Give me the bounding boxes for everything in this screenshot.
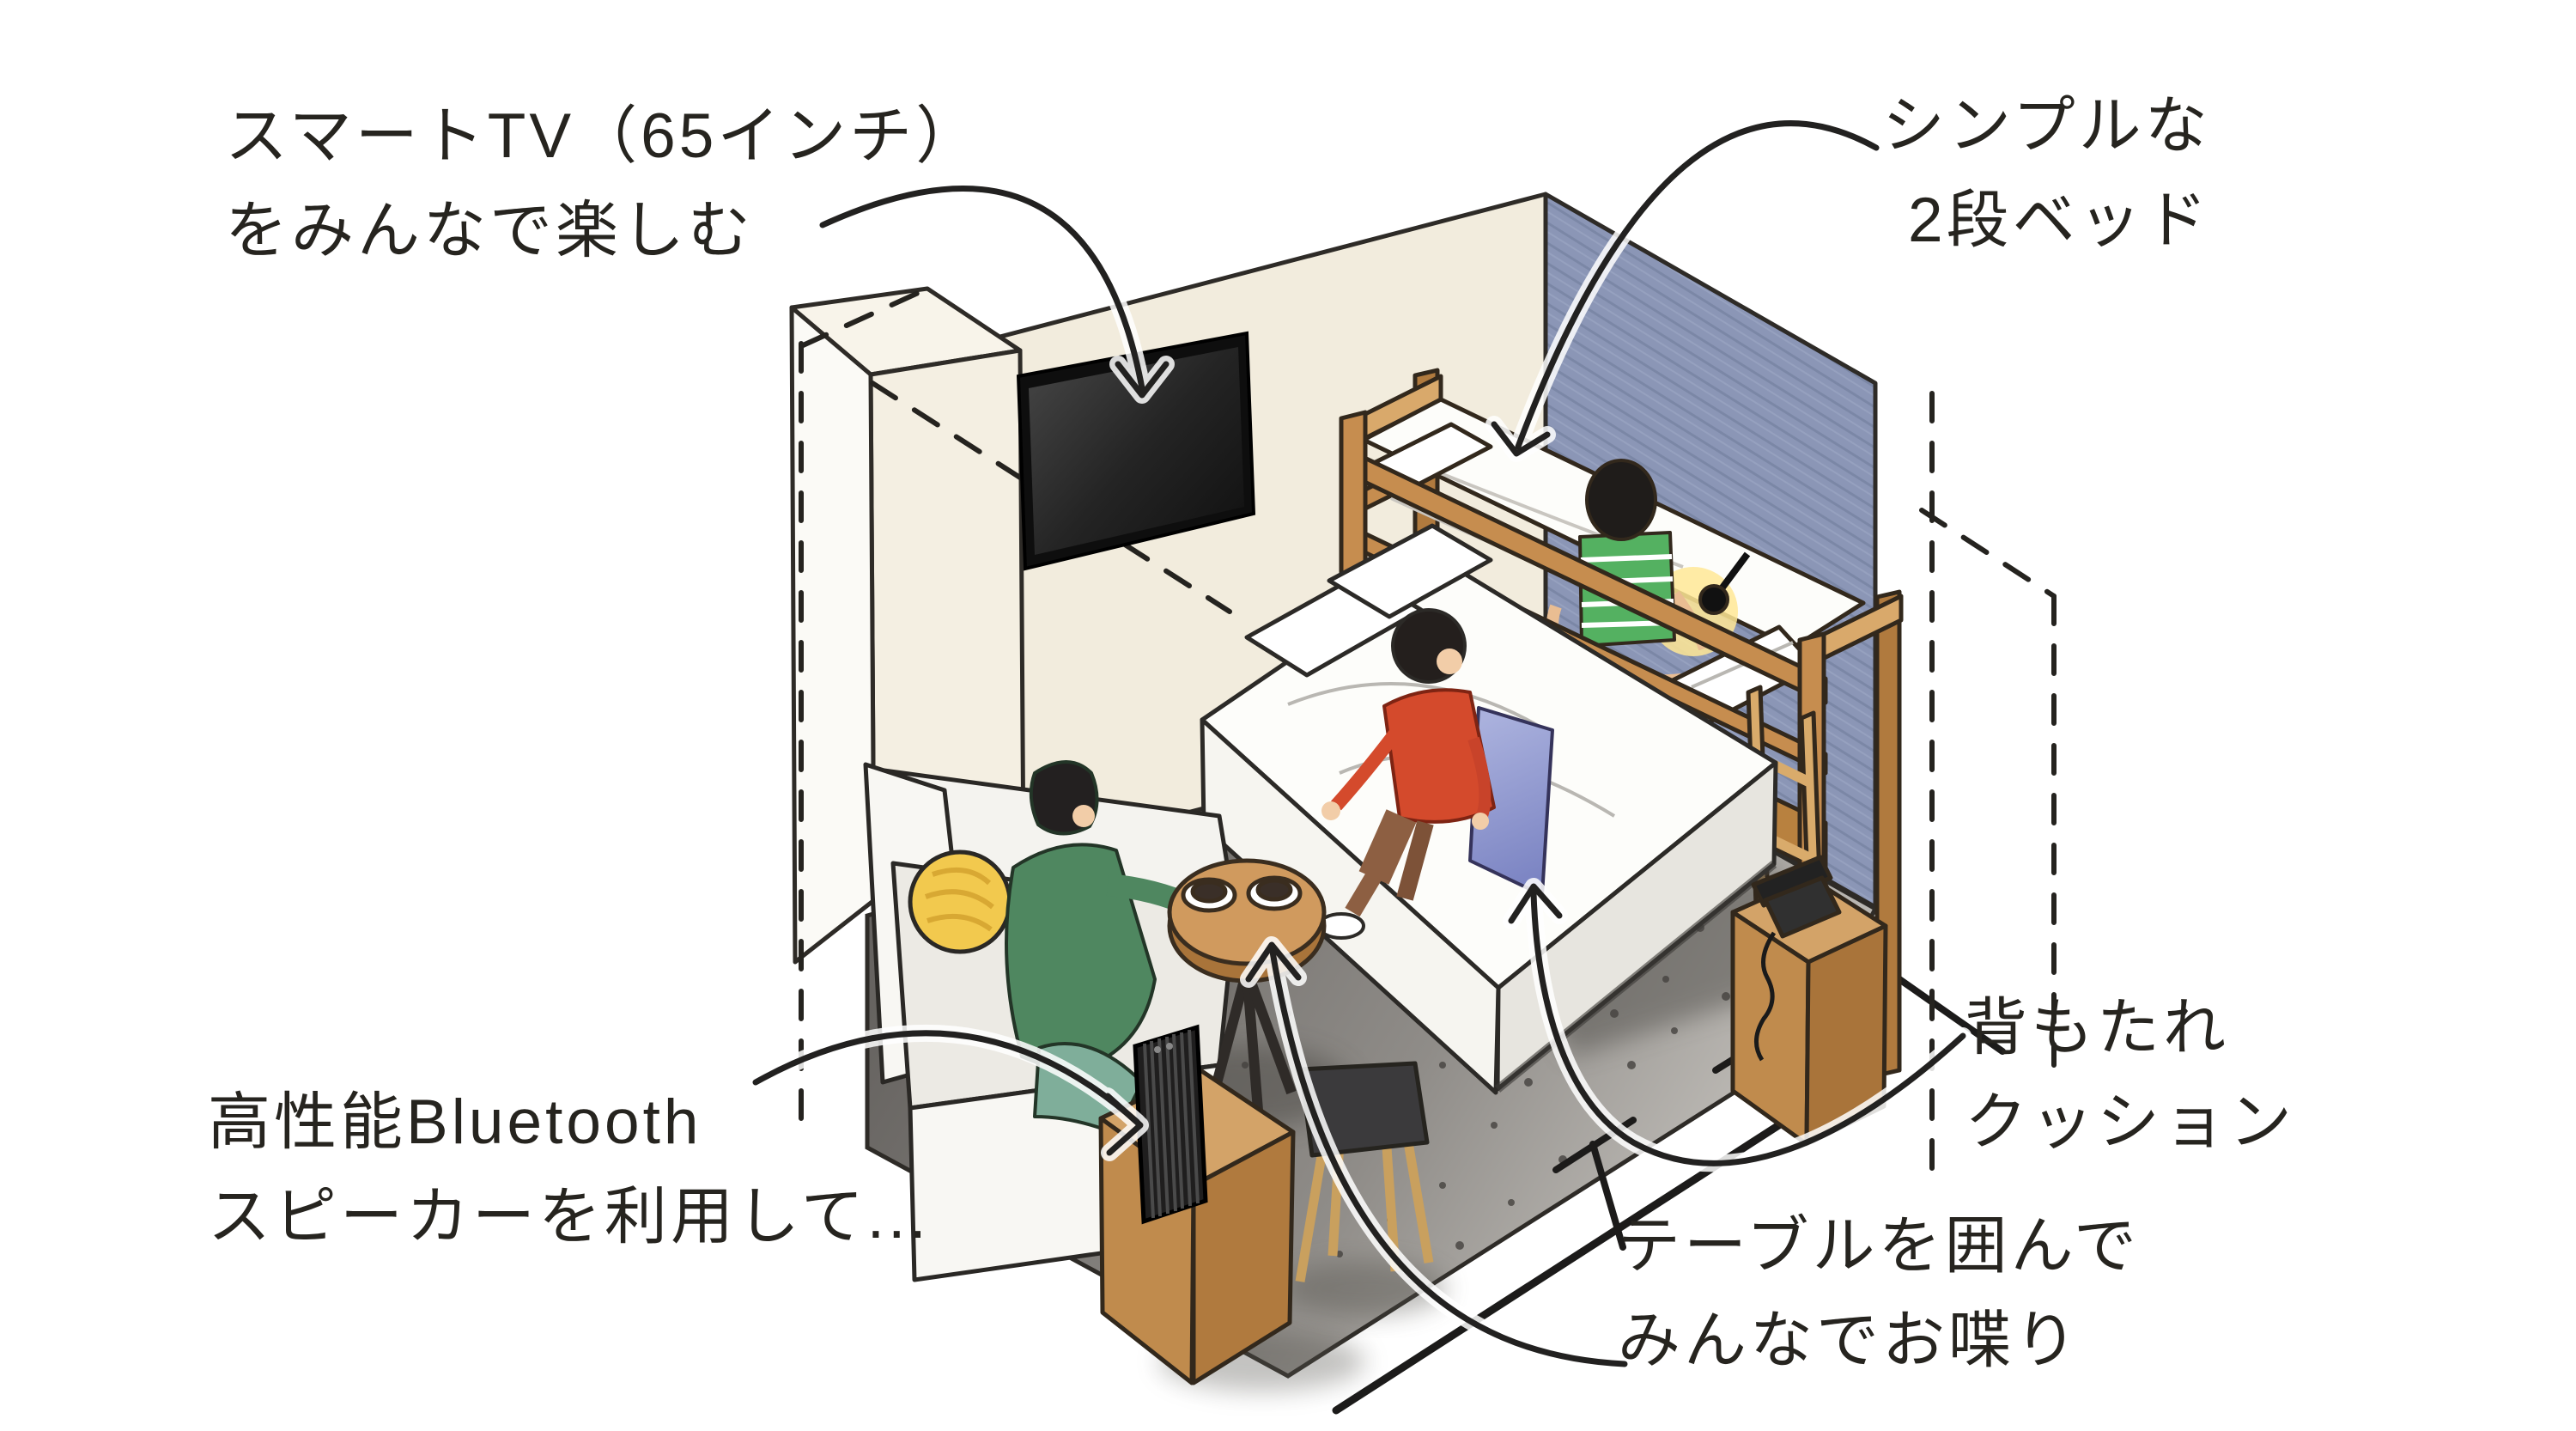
coffee-cup: [1183, 880, 1235, 910]
annotation-line: クッション: [1965, 1075, 2295, 1170]
illustration-canvas: スマートTV（65インチ） をみんなで楽しむ シンプルな 2段ベッド 高性能Bl…: [0, 0, 2576, 1431]
annotation-line: みんなでお喋り: [1618, 1294, 2140, 1388]
annotation-line: シンプルな: [1882, 91, 2211, 161]
yellow-cushion: [910, 852, 1010, 952]
annotation-bunk-bed: シンプルな 2段ベッド: [1882, 79, 2211, 267]
annotation-line: 2段ベッド: [1882, 174, 2211, 268]
annotation-line: スピーカーを利用して...: [208, 1170, 930, 1264]
annotation-smart-tv: スマートTV（65インチ） をみんなで楽しむ: [225, 89, 981, 277]
woman-face: [1437, 649, 1462, 674]
annotation-line: テーブルを囲んで: [1618, 1211, 2140, 1281]
annotation-bluetooth-speaker: 高性能Bluetooth スピーカーを利用して...: [208, 1075, 930, 1264]
annotation-line: 背もたれ: [1965, 993, 2229, 1063]
coffee-cup: [1249, 878, 1300, 909]
annotation-backrest-cushion: 背もたれ クッション: [1965, 981, 2295, 1169]
man-face: [1072, 805, 1095, 827]
annotation-table-chat: テーブルを囲んで みんなでお喋り: [1618, 1199, 2140, 1387]
annotation-line: スマートTV（65インチ）: [225, 101, 981, 171]
annotation-line: 高性能Bluetooth: [208, 1087, 702, 1157]
annotation-line: をみんなで楽しむ: [225, 184, 981, 278]
child-hair: [1587, 460, 1656, 539]
table-top: [1170, 861, 1324, 964]
tv-column-side: [792, 308, 874, 962]
